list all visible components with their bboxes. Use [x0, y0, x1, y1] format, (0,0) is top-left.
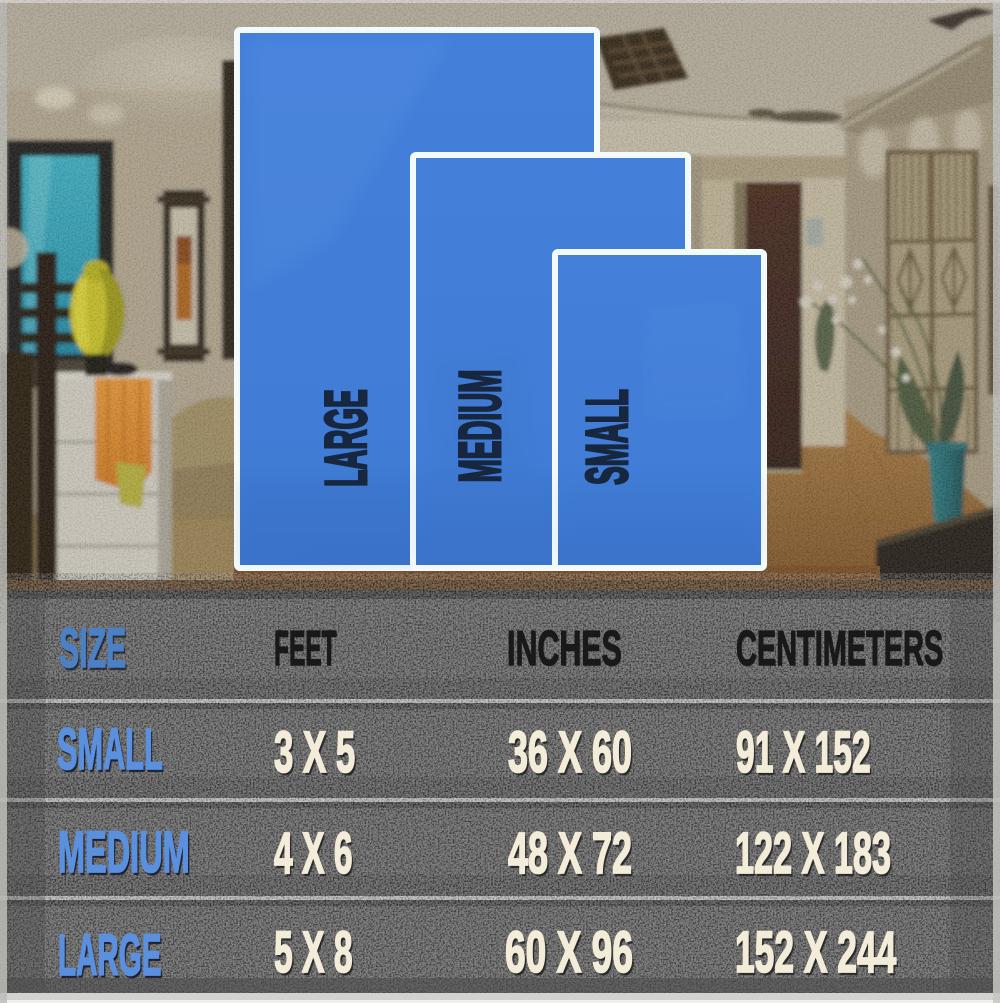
svg-text:SMALL: SMALL [574, 389, 639, 485]
svg-text:LARGE: LARGE [313, 389, 378, 486]
svg-text:MEDIUM: MEDIUM [447, 370, 512, 483]
